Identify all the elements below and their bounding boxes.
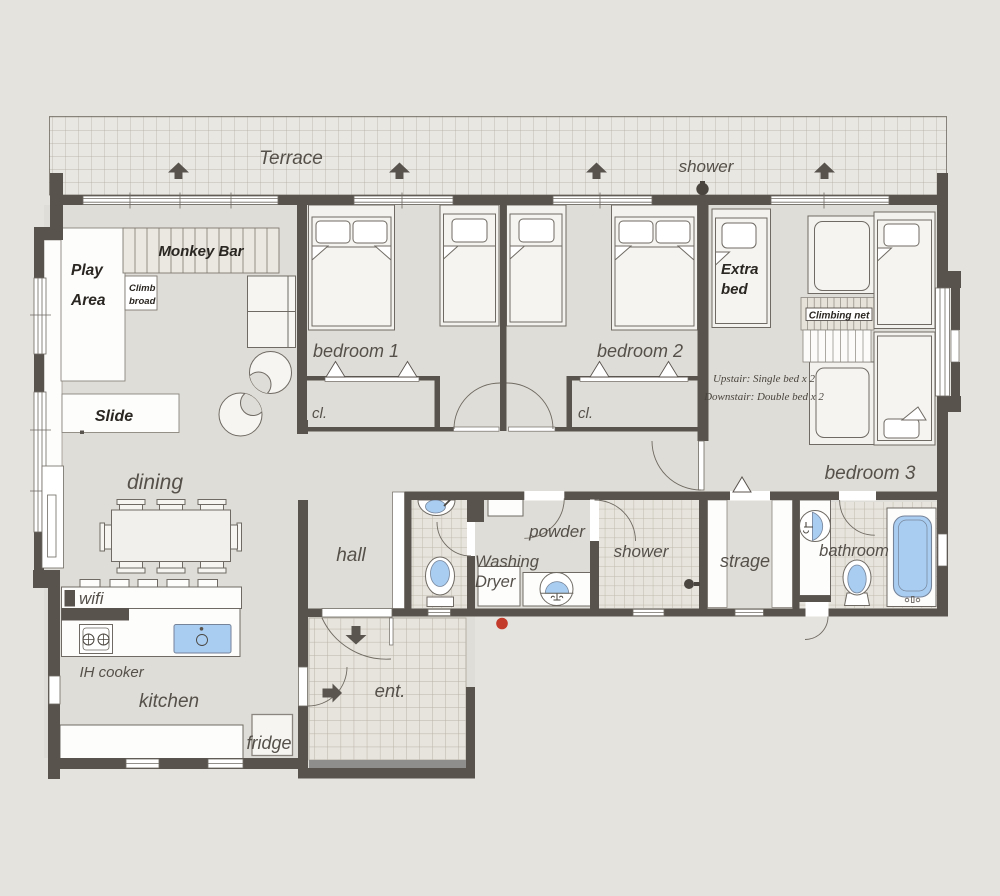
svg-text:Washing: Washing [475, 553, 540, 571]
svg-text:shower: shower [614, 542, 670, 561]
svg-text:bathroom: bathroom [819, 542, 889, 560]
svg-text:hall: hall [336, 545, 366, 566]
svg-text:Play: Play [71, 262, 104, 279]
svg-text:cl.: cl. [312, 405, 327, 422]
svg-text:bed: bed [721, 281, 749, 298]
svg-text:Terrace: Terrace [259, 148, 323, 169]
svg-text:bedroom 1: bedroom 1 [313, 341, 399, 361]
svg-text:Dryer: Dryer [475, 573, 517, 591]
svg-text:dining: dining [127, 471, 183, 494]
svg-text:strage: strage [720, 551, 770, 571]
svg-text:powder: powder [528, 522, 586, 541]
svg-text:Slide: Slide [95, 408, 133, 425]
svg-text:ent.: ent. [375, 680, 406, 701]
svg-text:cl.: cl. [578, 405, 593, 422]
svg-text:Upstair: Single bed x 2: Upstair: Single bed x 2 [713, 373, 816, 385]
svg-text:Downstair: Double bed x 2: Downstair: Double bed x 2 [703, 391, 824, 403]
svg-text:shower: shower [679, 157, 735, 176]
svg-text:wifi: wifi [79, 589, 105, 608]
svg-text:Area: Area [70, 292, 106, 309]
svg-text:Climbing net: Climbing net [809, 311, 870, 322]
svg-text:Climb: Climb [129, 283, 156, 294]
svg-text:broad: broad [129, 296, 156, 307]
svg-text:bedroom 3: bedroom 3 [825, 463, 916, 484]
svg-text:bedroom 2: bedroom 2 [597, 341, 683, 361]
svg-text:fridge: fridge [246, 733, 291, 753]
svg-text:IH cooker: IH cooker [80, 664, 145, 681]
svg-text:Extra: Extra [721, 261, 759, 278]
svg-text:kitchen: kitchen [139, 691, 199, 712]
svg-text:Monkey Bar: Monkey Bar [158, 243, 244, 260]
